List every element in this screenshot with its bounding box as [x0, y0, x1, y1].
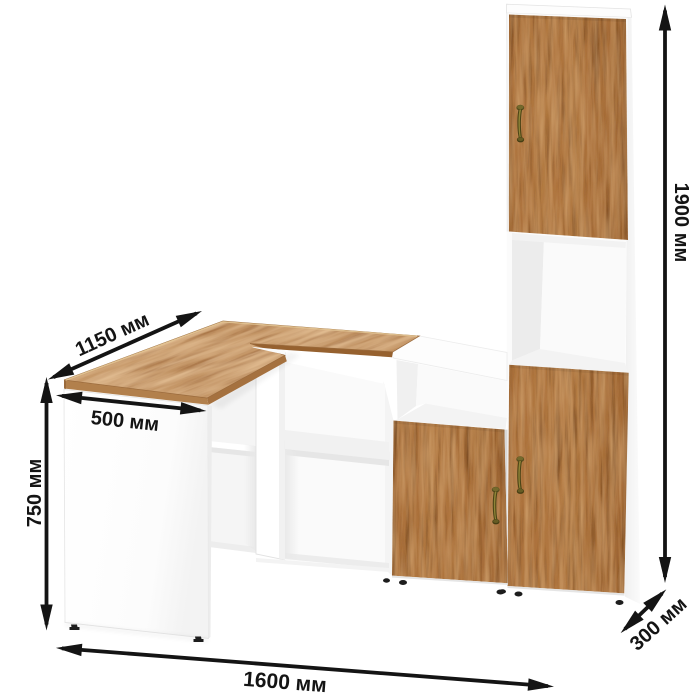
svg-text:750 мм: 750 мм	[24, 459, 46, 528]
svg-text:1900 мм: 1900 мм	[670, 183, 691, 263]
